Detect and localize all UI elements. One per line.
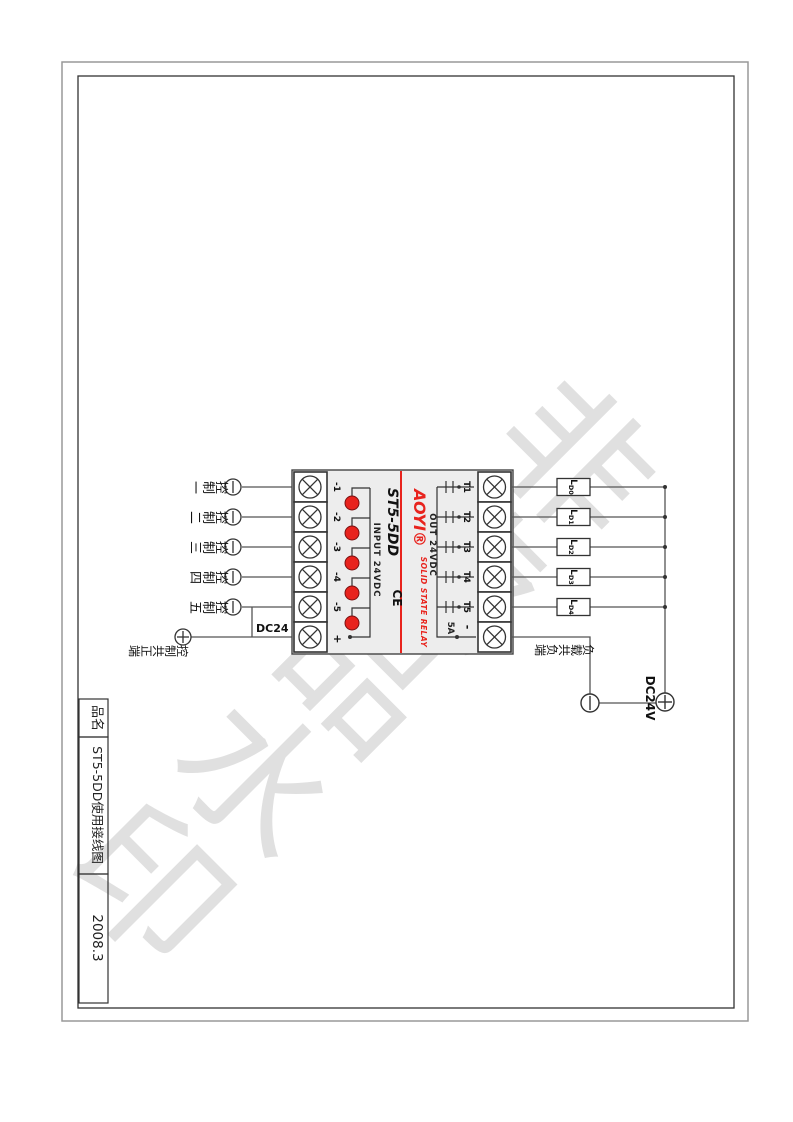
svg-text:T5: T5 bbox=[461, 601, 471, 613]
led-1 bbox=[345, 496, 359, 510]
control-4-label: 四制控 bbox=[187, 571, 228, 584]
output-terminal-column bbox=[478, 472, 511, 652]
wiring-diagram-canvas: 印水品卖非 品名 ST5-5DD使用接线图 2008.3 一制控 二制控 三制控 bbox=[0, 0, 793, 1122]
ce-mark: CE bbox=[390, 589, 404, 606]
control-1-label: 一制控 bbox=[187, 481, 228, 494]
svg-text:T3: T3 bbox=[461, 541, 471, 553]
svg-text:-2: -2 bbox=[331, 512, 341, 522]
led-2 bbox=[345, 526, 359, 540]
relay-brand-text: AOYI® bbox=[410, 487, 429, 547]
plus-terminal-icon bbox=[656, 693, 674, 711]
relay-subtitle-text: SOLID STATE RELAY bbox=[419, 557, 428, 649]
control-5-label: 五制控 bbox=[187, 601, 228, 614]
relay-model-text: ST5-5DD bbox=[384, 488, 400, 556]
svg-text:T2: T2 bbox=[461, 511, 471, 523]
right-dc24v-label: DC24V bbox=[643, 676, 657, 721]
control-3-label: 三制控 bbox=[187, 541, 228, 554]
svg-text:T4: T4 bbox=[461, 571, 471, 583]
relay-module: -1 -2 -3 -4 -5 + ST5-5DD bbox=[292, 470, 513, 654]
relay-current-rating: 5A bbox=[445, 622, 455, 635]
junction-dot bbox=[348, 635, 352, 639]
led-5 bbox=[345, 616, 359, 630]
title-block-product-title: ST5-5DD使用接线图 bbox=[90, 746, 105, 864]
relay-output-rating-text: OUT 24VDC bbox=[427, 513, 437, 577]
control-minus-terminals bbox=[175, 479, 241, 645]
control-2-label: 二制控 bbox=[187, 511, 228, 524]
watermark-text: 印水品卖非 bbox=[33, 347, 686, 1000]
left-control-wiring bbox=[191, 487, 294, 637]
svg-text:-1: -1 bbox=[331, 482, 341, 492]
svg-text:T1: T1 bbox=[461, 481, 471, 493]
minus-terminal-icon bbox=[581, 694, 599, 712]
input-terminal-column bbox=[294, 472, 327, 652]
svg-text:-5: -5 bbox=[331, 602, 341, 612]
svg-text:+: + bbox=[331, 634, 344, 643]
title-block-date: 2008.3 bbox=[89, 914, 105, 961]
control-common-label: 端正共制控 bbox=[127, 645, 189, 657]
led-3 bbox=[345, 556, 359, 570]
load-common-label: 端负共载负 bbox=[533, 644, 595, 656]
title-block-field-label: 品名 bbox=[89, 705, 105, 731]
svg-text:-3: -3 bbox=[331, 542, 341, 552]
relay-input-rating-text: INPUT 24VDC bbox=[371, 523, 381, 598]
svg-text:-4: -4 bbox=[331, 572, 341, 582]
scanned-wiring-diagram-page: 印水品卖非 品名 ST5-5DD使用接线图 2008.3 一制控 二制控 三制控 bbox=[0, 0, 793, 1122]
plus-terminal-icon bbox=[175, 629, 191, 645]
svg-text:-: - bbox=[461, 625, 474, 630]
led-4 bbox=[345, 586, 359, 600]
